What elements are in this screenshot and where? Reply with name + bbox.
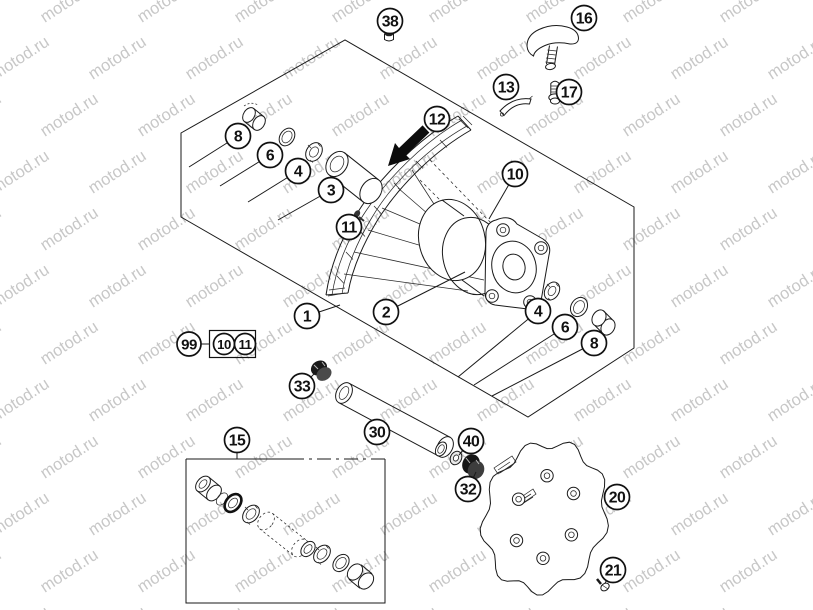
disc-bolt-boss <box>510 534 522 546</box>
bearing-kit-box <box>186 459 385 603</box>
callout-10: 10 <box>503 162 528 187</box>
disc-bolt-boss <box>567 487 579 499</box>
callout-3: 3 <box>319 178 344 203</box>
callout-15: 15 <box>225 428 250 453</box>
callout-11: 11 <box>337 215 362 240</box>
callout-1: 1 <box>295 304 320 329</box>
diagram-art: 3816131712864310111246899101133301540322… <box>0 0 813 610</box>
disc-bolt-boss <box>512 493 524 505</box>
callout-32: 32 <box>456 477 481 502</box>
callout-number: 10 <box>507 167 524 184</box>
callout-number: 8 <box>234 129 243 146</box>
callout-number: 12 <box>429 112 446 129</box>
brake-disc <box>480 442 608 595</box>
parts-diagram-page: motod.rumotod.rumotod.rumotod.rumotod.ru… <box>0 0 813 610</box>
callout-number: 3 <box>327 183 336 200</box>
callout-number: 30 <box>369 425 386 442</box>
leader-line <box>458 311 538 377</box>
callout-21: 21 <box>601 558 626 583</box>
callout-number: 13 <box>498 80 515 97</box>
callout-20: 20 <box>605 485 630 510</box>
disc-outer-edge <box>480 442 608 595</box>
callout-40: 40 <box>459 429 484 454</box>
callout-number: 11 <box>239 337 252 352</box>
callout-13: 13 <box>494 75 519 100</box>
callout-99: 99 <box>177 332 201 356</box>
callout-number: 15 <box>229 433 246 450</box>
callout-number: 21 <box>605 563 622 580</box>
callout-number: 2 <box>382 305 391 322</box>
callout-2: 2 <box>374 300 399 325</box>
rim-lock <box>527 25 579 70</box>
callout-number: 16 <box>576 11 593 28</box>
callout-6: 6 <box>553 315 578 340</box>
direction-arrow <box>388 125 429 166</box>
callout-number: 17 <box>561 85 578 102</box>
callout-number: 33 <box>294 379 311 396</box>
callout-4: 4 <box>526 299 551 324</box>
callout-number: 4 <box>294 164 303 181</box>
callout-8: 8 <box>582 331 607 356</box>
callout-11: 11 <box>235 334 256 355</box>
callout-number: 20 <box>609 490 626 507</box>
callout-38: 38 <box>378 9 403 34</box>
callout-12: 12 <box>425 107 450 132</box>
disc-bolt-boss <box>565 529 577 541</box>
disc-bolt-boss <box>537 552 549 564</box>
seal-ring-left <box>276 125 298 149</box>
bearing-kit-parts <box>193 473 377 592</box>
leader-line <box>492 343 594 396</box>
callout-number: 40 <box>463 434 480 451</box>
callout-number: 32 <box>460 482 477 499</box>
callout-8: 8 <box>226 124 251 149</box>
callout-number: 10 <box>217 337 231 352</box>
callout-number: 6 <box>266 148 275 165</box>
callout-number: 6 <box>561 320 570 337</box>
callout-number: 1 <box>303 309 312 326</box>
callout-number: 8 <box>590 336 599 353</box>
leader-line <box>474 327 565 385</box>
callout-4: 4 <box>286 159 311 184</box>
callout-16: 16 <box>572 6 597 31</box>
callout-17: 17 <box>557 80 582 105</box>
callout-33: 33 <box>290 374 315 399</box>
callout-number: 11 <box>341 220 357 237</box>
front-hub <box>410 192 618 337</box>
callout-number: 38 <box>382 14 399 31</box>
callout-10: 10 <box>214 334 235 355</box>
callout-number: 4 <box>534 304 543 321</box>
callout-6: 6 <box>258 143 283 168</box>
callout-number: 99 <box>181 336 197 353</box>
callout-30: 30 <box>365 420 390 445</box>
disc-bolt-boss <box>541 470 553 482</box>
